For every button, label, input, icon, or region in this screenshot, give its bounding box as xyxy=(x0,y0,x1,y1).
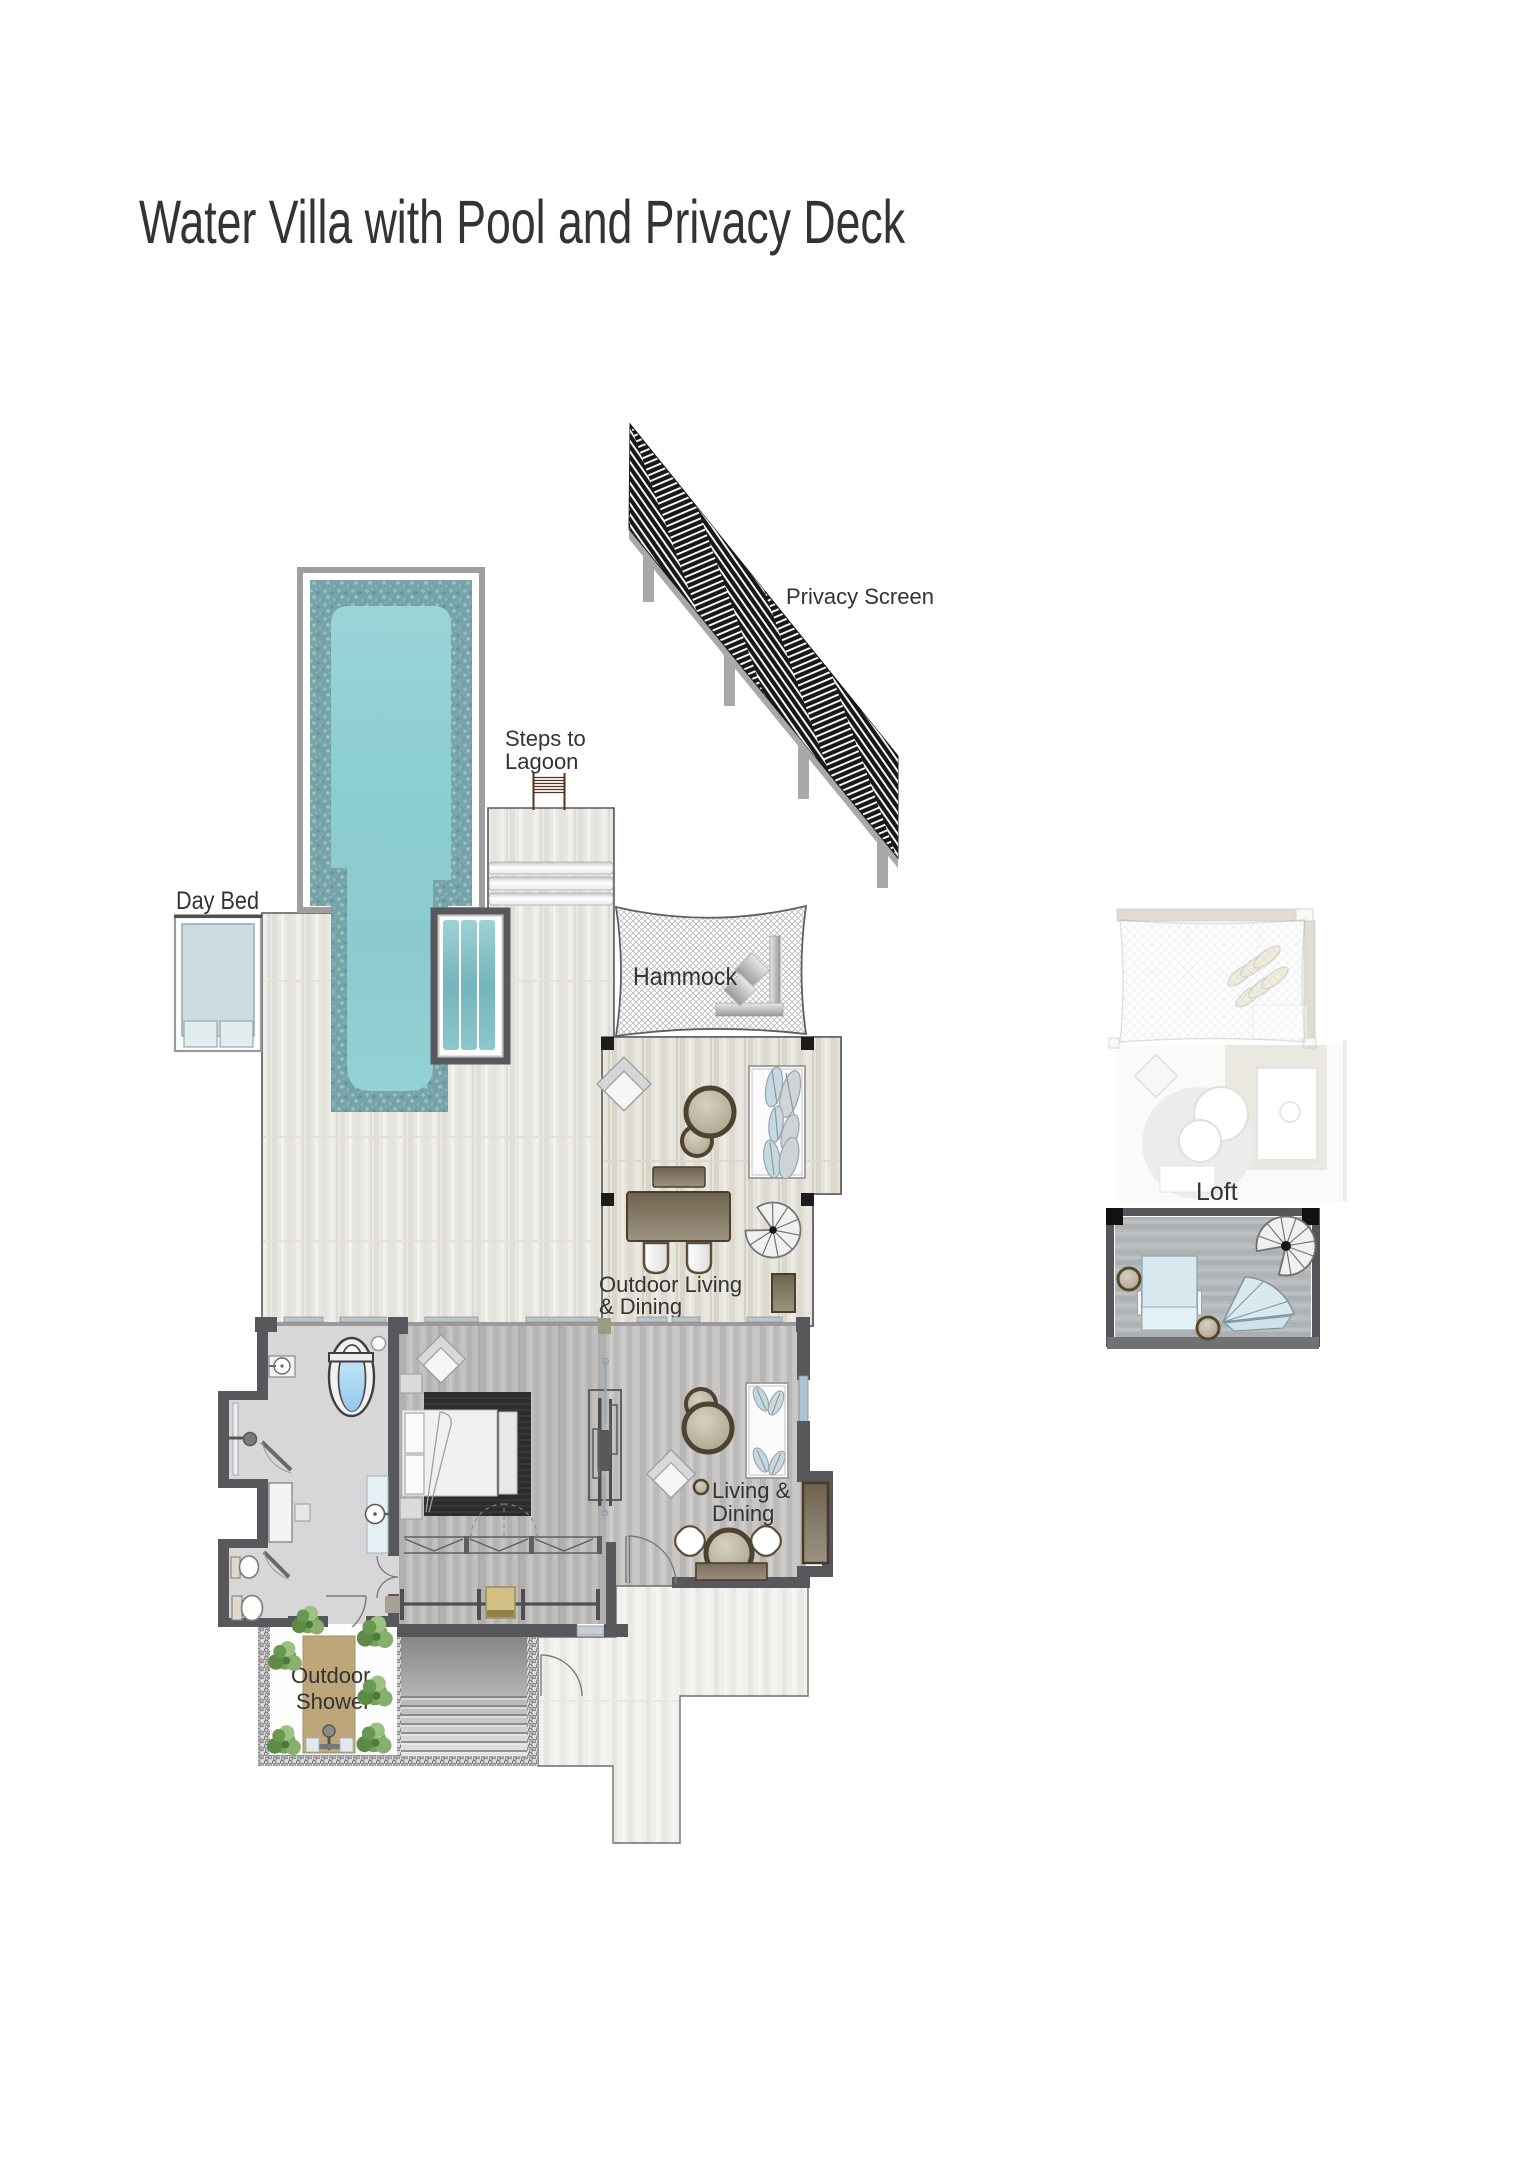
svg-text:Dining: Dining xyxy=(712,1501,774,1526)
svg-text:Hammock: Hammock xyxy=(633,963,737,991)
svg-text:Water Villa with Pool and Priv: Water Villa with Pool and Privacy Deck xyxy=(139,188,905,256)
svg-text:Lagoon: Lagoon xyxy=(505,749,578,774)
svg-text:& Dining: & Dining xyxy=(599,1294,682,1319)
svg-text:Living &: Living & xyxy=(712,1478,791,1503)
svg-text:Outdoor: Outdoor xyxy=(291,1663,371,1688)
svg-text:Day Bed: Day Bed xyxy=(176,887,259,915)
svg-text:Privacy Screen: Privacy Screen xyxy=(786,584,934,609)
svg-text:Loft: Loft xyxy=(1196,1178,1238,1206)
svg-text:Steps to: Steps to xyxy=(505,726,586,751)
